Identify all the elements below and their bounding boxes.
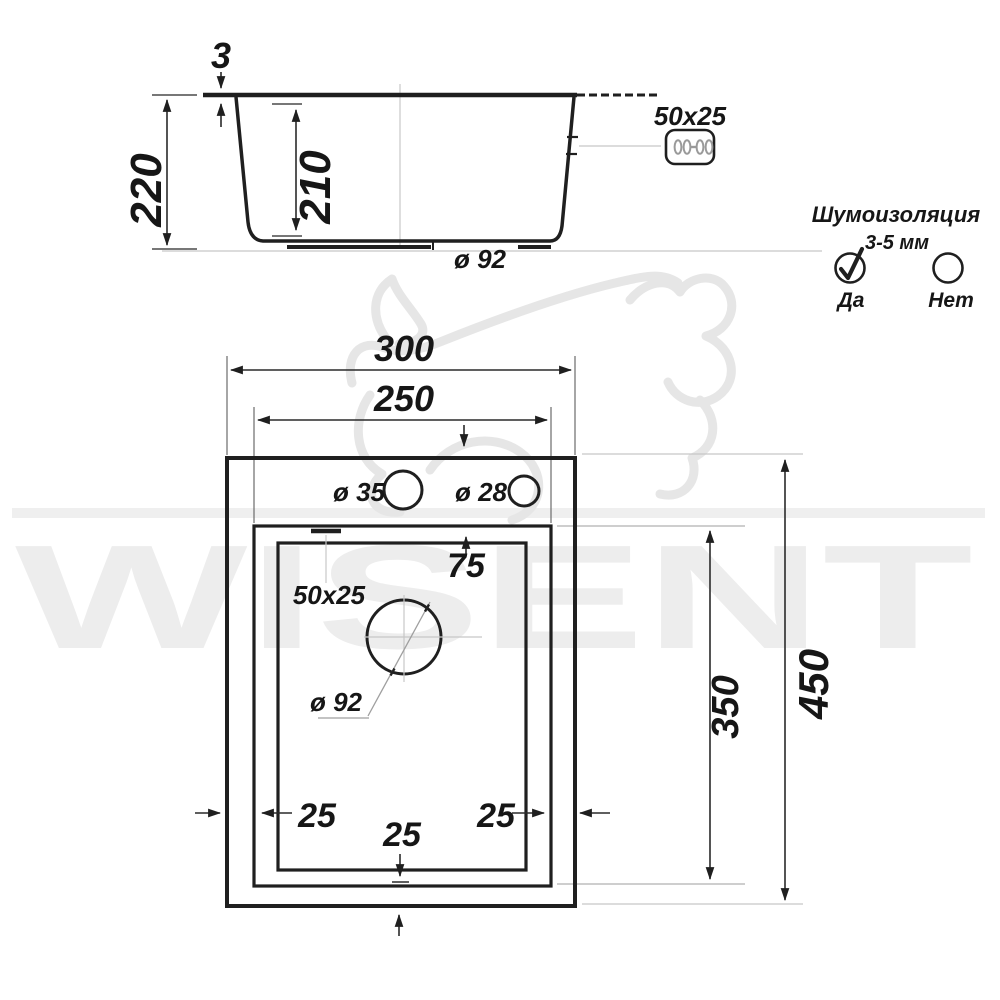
dim-25-bottom-label: 25 [382, 816, 422, 854]
overflow-slot-icon [666, 130, 714, 164]
overflow-icon-hole-2 [684, 140, 691, 154]
dim-210-label: 210 [291, 150, 340, 225]
dim-25-left-label: 25 [297, 797, 337, 835]
insulation-yes-label: Да [836, 289, 865, 312]
dim-75-label: 75 [447, 547, 486, 585]
insulation-no-label: Нет [928, 289, 974, 312]
side-view: 220 3 210 ø 92 50x25 [122, 35, 822, 274]
bowl-profile [236, 97, 574, 241]
noise-insulation-legend: Шумоизоляция 3-5 мм Да Нет [812, 202, 981, 312]
dim-350-label: 350 [705, 675, 747, 738]
top-overflow-size-label: 50x25 [293, 580, 366, 610]
dim-250-label: 250 [373, 378, 434, 419]
drawing-canvas: WISENT 220 3 [0, 0, 1000, 1000]
insulation-title: Шумоизоляция [812, 202, 981, 227]
hole-28-label: ø 28 [455, 477, 508, 507]
dim-450-label: 450 [790, 649, 837, 720]
faucet-hole-35 [384, 471, 422, 509]
dim-3-label: 3 [211, 35, 231, 76]
insulation-thickness: 3-5 мм [865, 232, 929, 254]
bison-muzzle-curve [660, 400, 713, 495]
bison-horn-curve [630, 278, 732, 402]
overflow-icon-hole-1 [675, 140, 682, 154]
insulation-no-circle [934, 254, 963, 283]
dim-220-label: 220 [122, 153, 171, 228]
dim-300-label: 300 [374, 328, 434, 369]
side-drain-label: ø 92 [454, 244, 507, 274]
hole-35-label: ø 35 [333, 477, 386, 507]
dim-25-right-label: 25 [476, 797, 516, 835]
sink-technical-drawing: WISENT 220 3 [0, 0, 1000, 1000]
overflow-icon-hole-4 [706, 140, 713, 154]
overflow-icon-hole-3 [697, 140, 704, 154]
side-overflow-size-label: 50x25 [654, 101, 727, 131]
top-drain-label: ø 92 [310, 687, 363, 717]
